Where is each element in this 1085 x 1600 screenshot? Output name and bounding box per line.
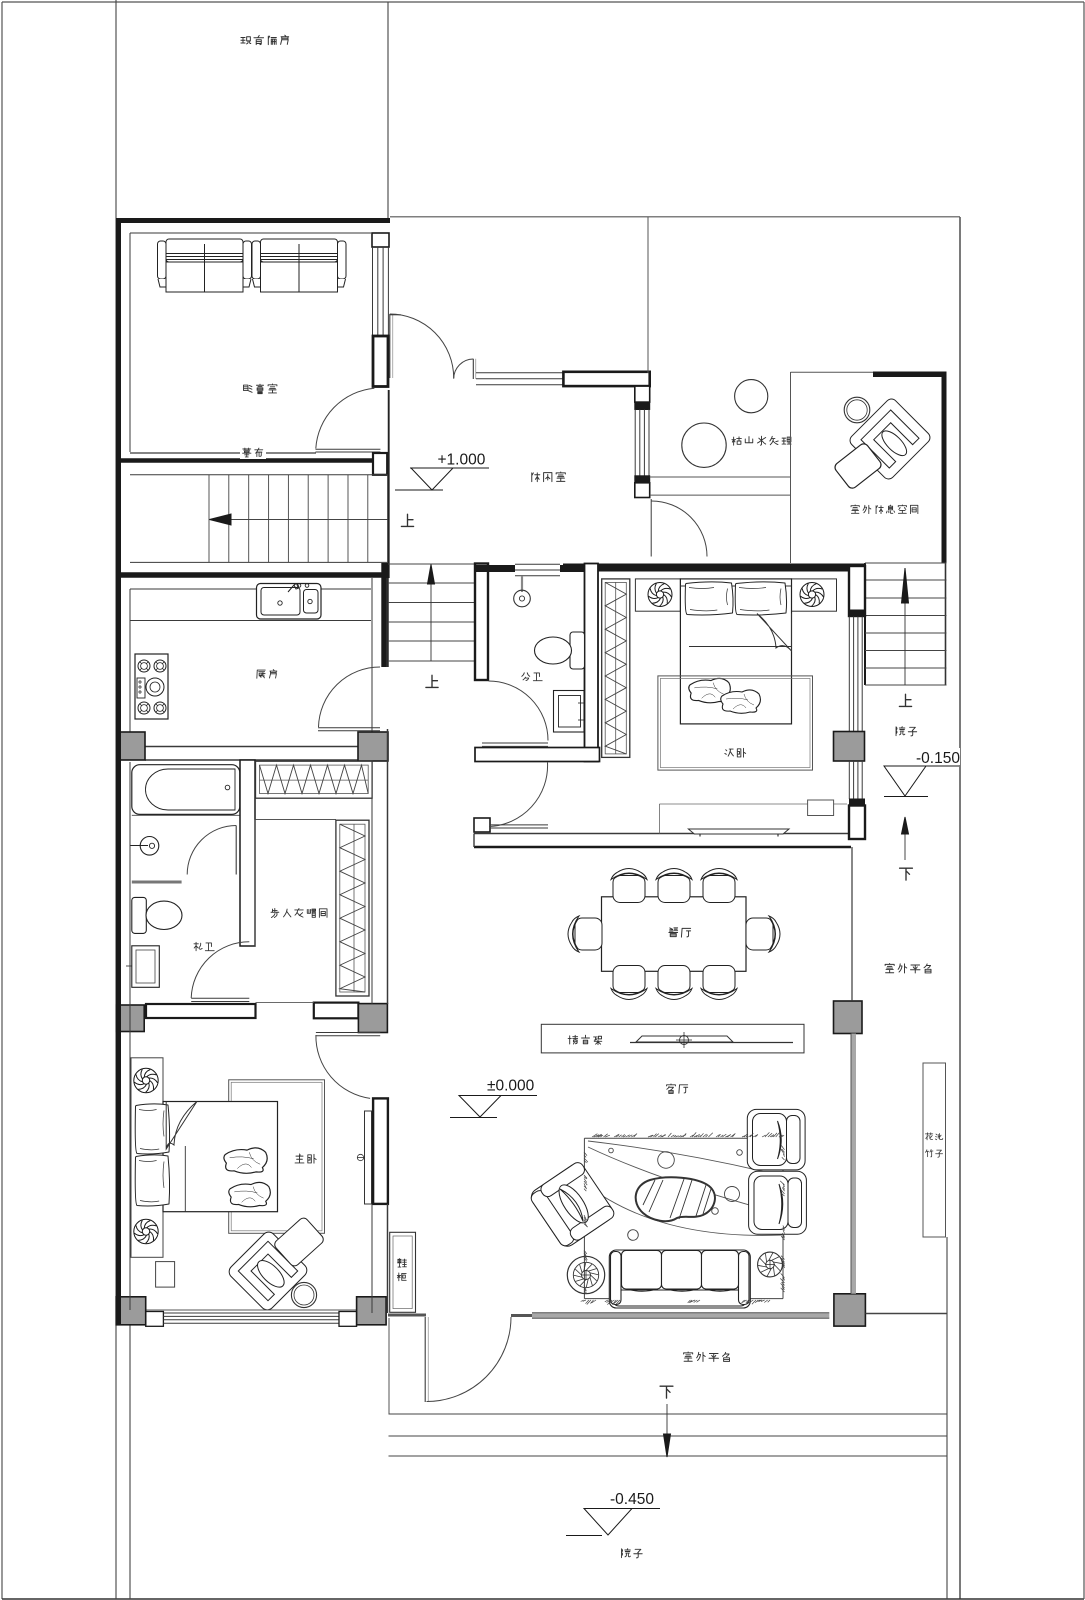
svg-text:-0.150: -0.150 [916, 750, 960, 767]
svg-text:-0.450: -0.450 [610, 1491, 654, 1508]
svg-text:+1.000: +1.000 [438, 452, 486, 469]
svg-text:±0.000: ±0.000 [487, 1078, 535, 1095]
